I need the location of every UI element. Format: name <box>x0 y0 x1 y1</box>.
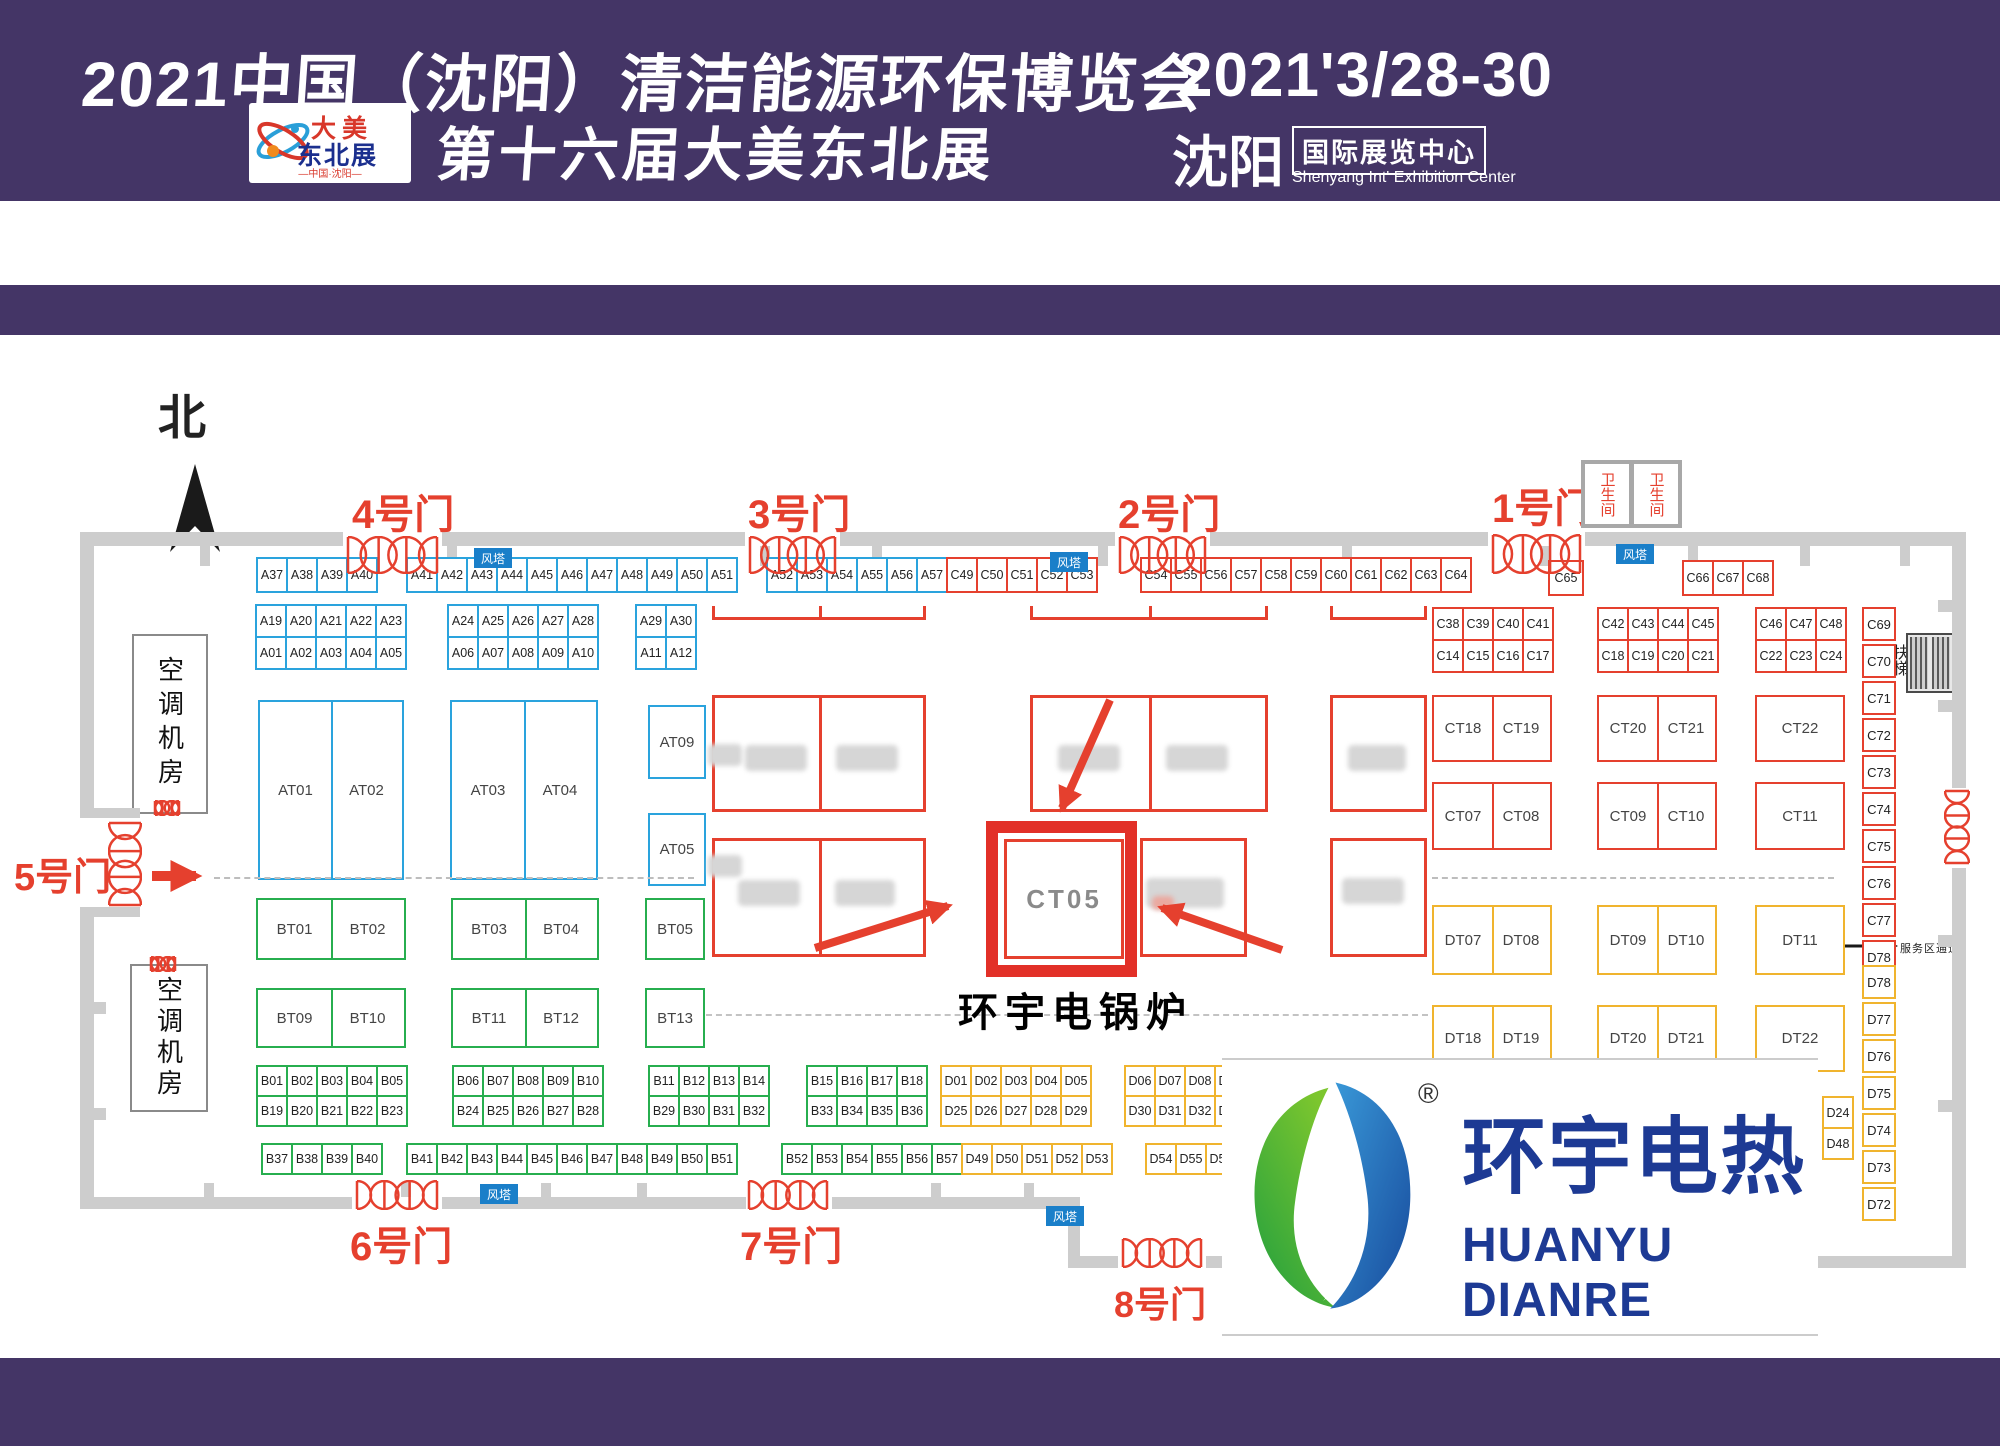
brand-name-en: HUANYU DIANRE <box>1462 1218 1818 1328</box>
inset-cut-booth <box>1330 606 1427 620</box>
censored-booth-name <box>1152 896 1174 910</box>
inset-cut-booth <box>1030 606 1268 620</box>
censored-booth-name <box>1058 745 1120 771</box>
inset-cut-booth <box>712 606 926 620</box>
floor-plan-poster: 2021中国（沈阳）清洁能源环保博览会 大美 东北展 —中国·沈阳— 第十六届大… <box>0 0 2000 1455</box>
censored-booth-name <box>738 880 800 906</box>
highlight-booth-label: CT05 <box>1026 884 1102 915</box>
censored-booth-name <box>836 745 898 771</box>
booth-CT05-highlighted: CT05 <box>1004 839 1124 959</box>
huanyu-logo-icon <box>1244 1074 1420 1318</box>
censored-booth-name <box>708 744 742 766</box>
censored-booth-name <box>1166 745 1228 771</box>
registered-mark: ® <box>1418 1078 1439 1110</box>
highlight-caption: 环宇电锅炉 <box>958 980 1193 1038</box>
censored-booth-name <box>835 880 895 906</box>
brand-logo-panel: ® 环宇电热 HUANYU DIANRE <box>1222 1058 1818 1336</box>
censored-booth-name <box>745 745 807 771</box>
censored-booth-name <box>1342 878 1404 904</box>
brand-name-cn: 环宇电热 <box>1462 1090 1806 1211</box>
censored-booth-name <box>1348 745 1406 771</box>
censored-booth-name <box>708 855 742 877</box>
